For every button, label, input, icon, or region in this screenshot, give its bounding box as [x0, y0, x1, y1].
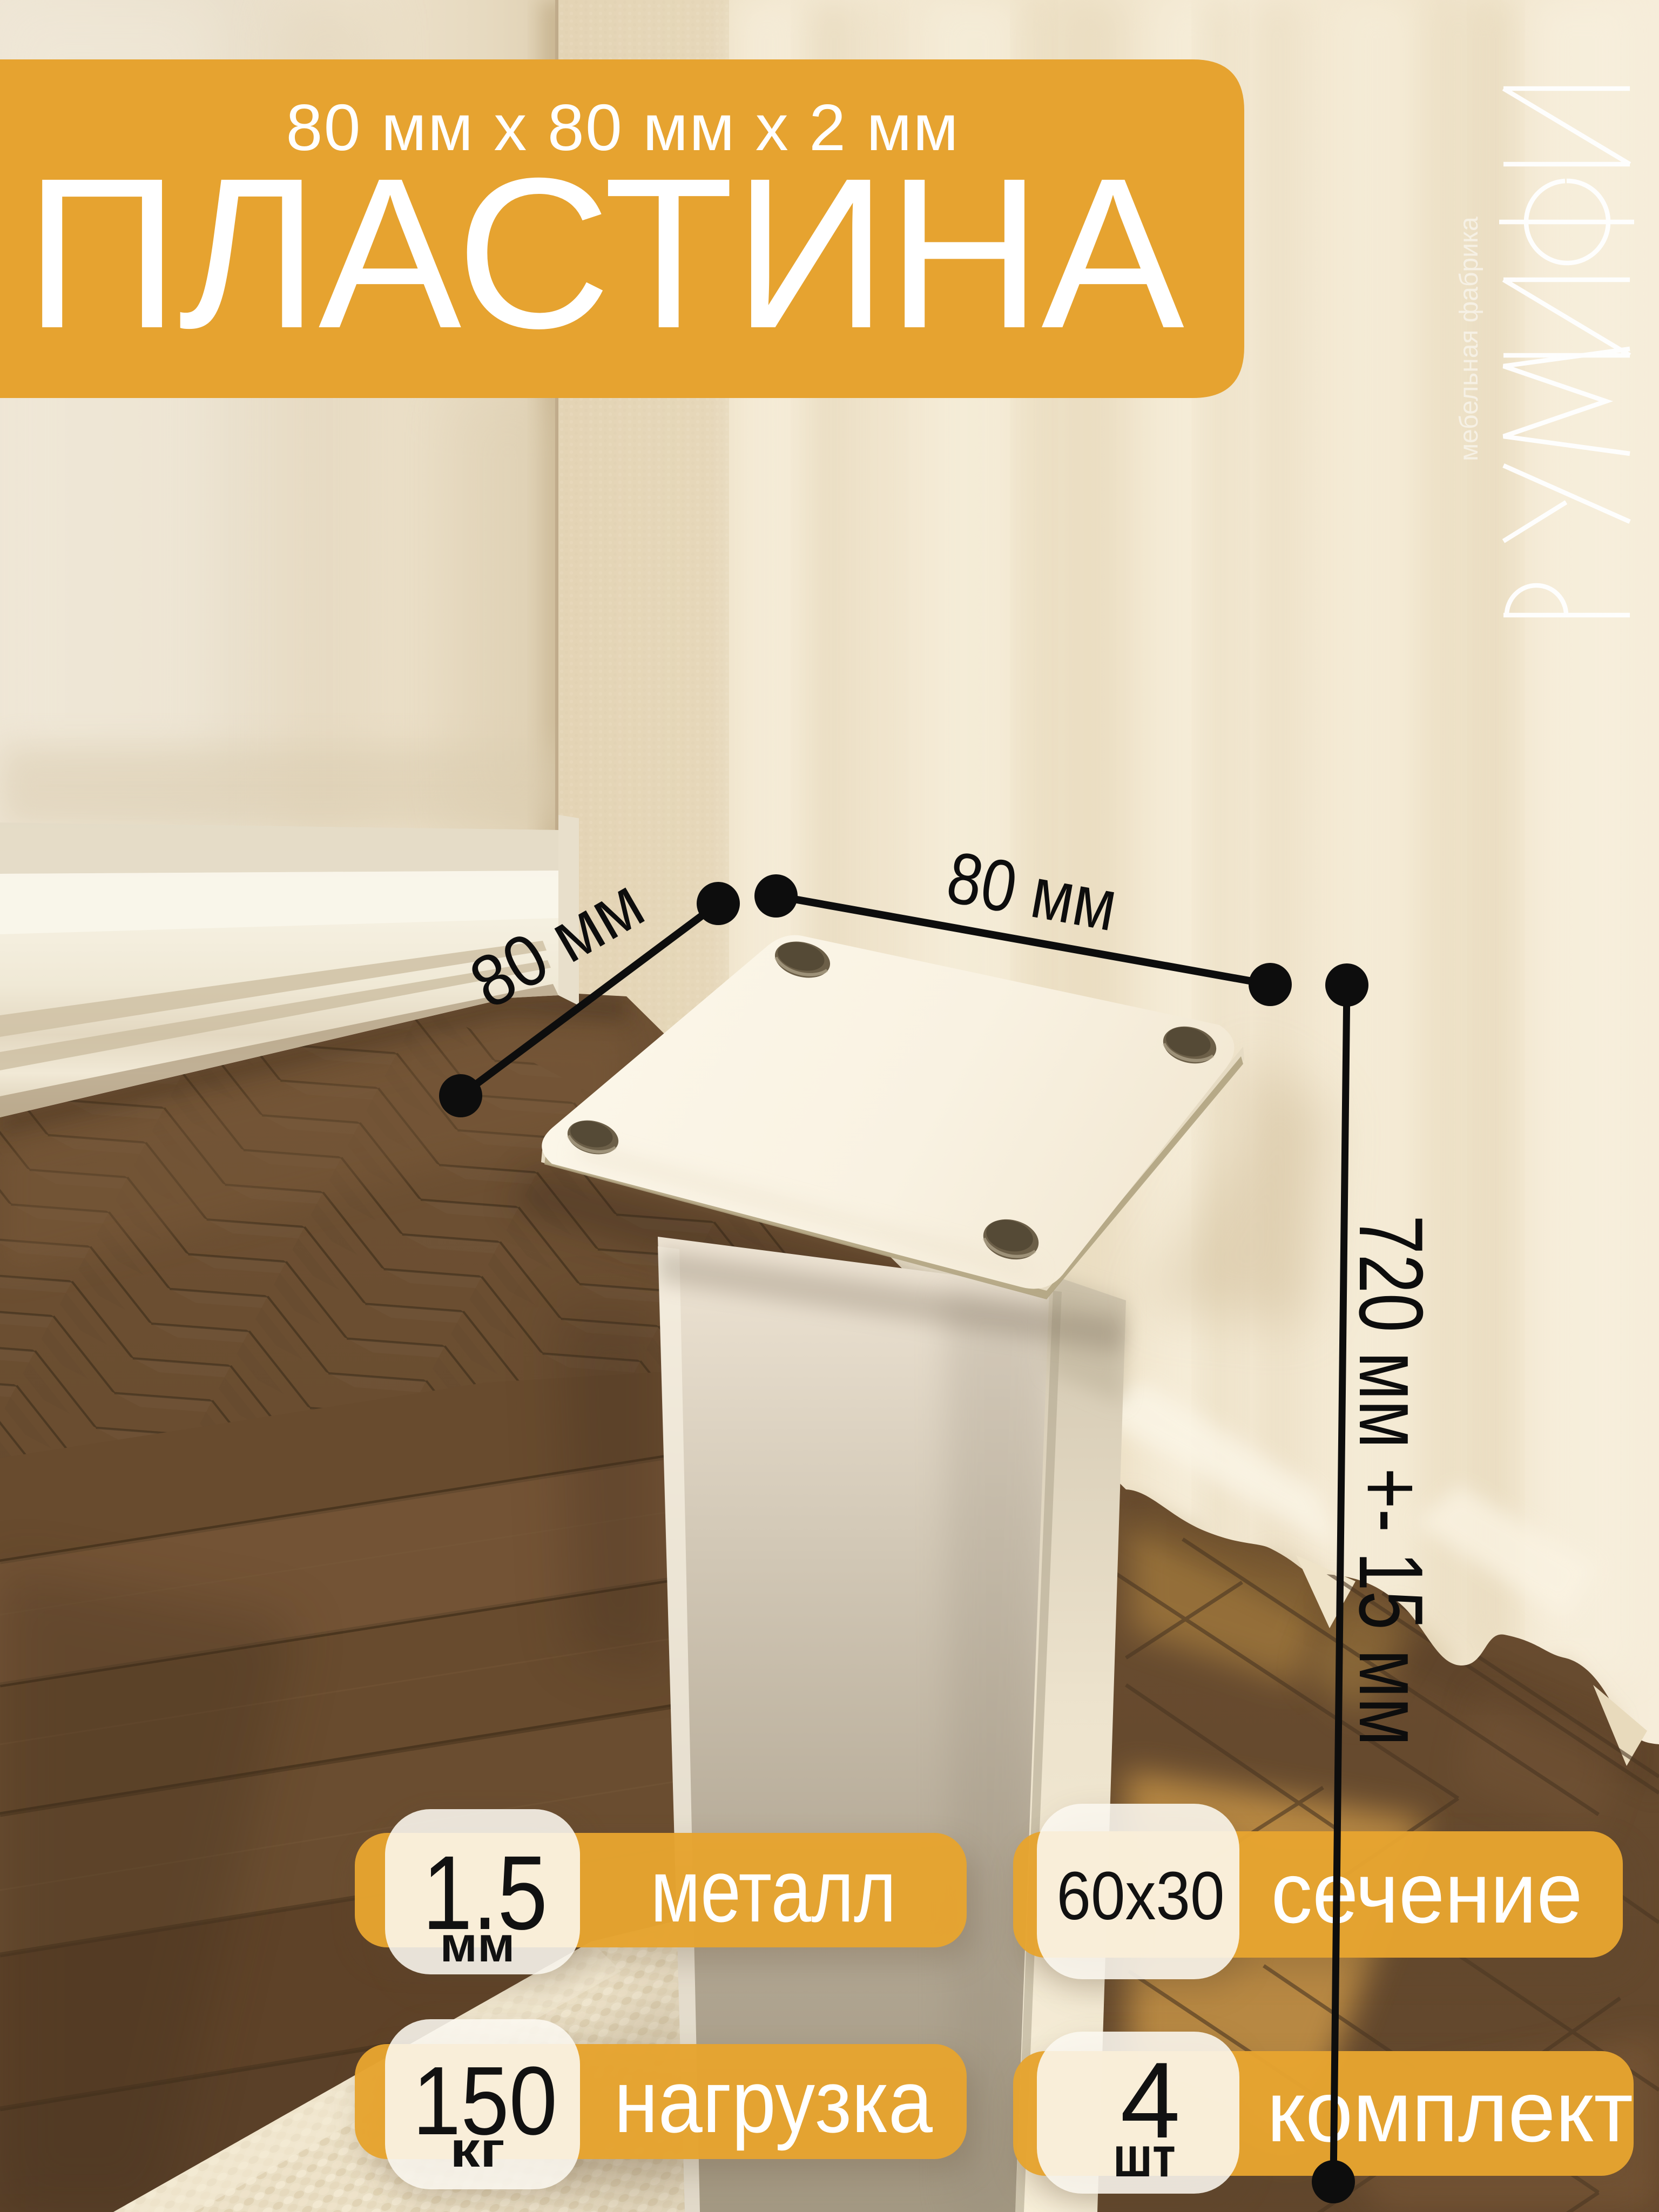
svg-text:сечение: сечение: [1271, 1844, 1583, 1941]
svg-text:нагрузка: нагрузка: [614, 2052, 933, 2151]
svg-text:металл: металл: [651, 1841, 896, 1940]
svg-text:комплект: комплект: [1267, 2063, 1633, 2160]
svg-text:мебельная фабрика: мебельная фабрика: [1455, 217, 1483, 461]
svg-text:мм: мм: [440, 1917, 515, 1972]
svg-text:шт: шт: [1113, 2126, 1176, 2189]
svg-text:720 мм +- 15 мм: 720 мм +- 15 мм: [1340, 1215, 1442, 1746]
svg-text:60х30: 60х30: [1057, 1858, 1225, 1934]
svg-text:кг: кг: [450, 2122, 505, 2177]
svg-text:ПЛАСТИНА: ПЛАСТИНА: [25, 134, 1185, 373]
